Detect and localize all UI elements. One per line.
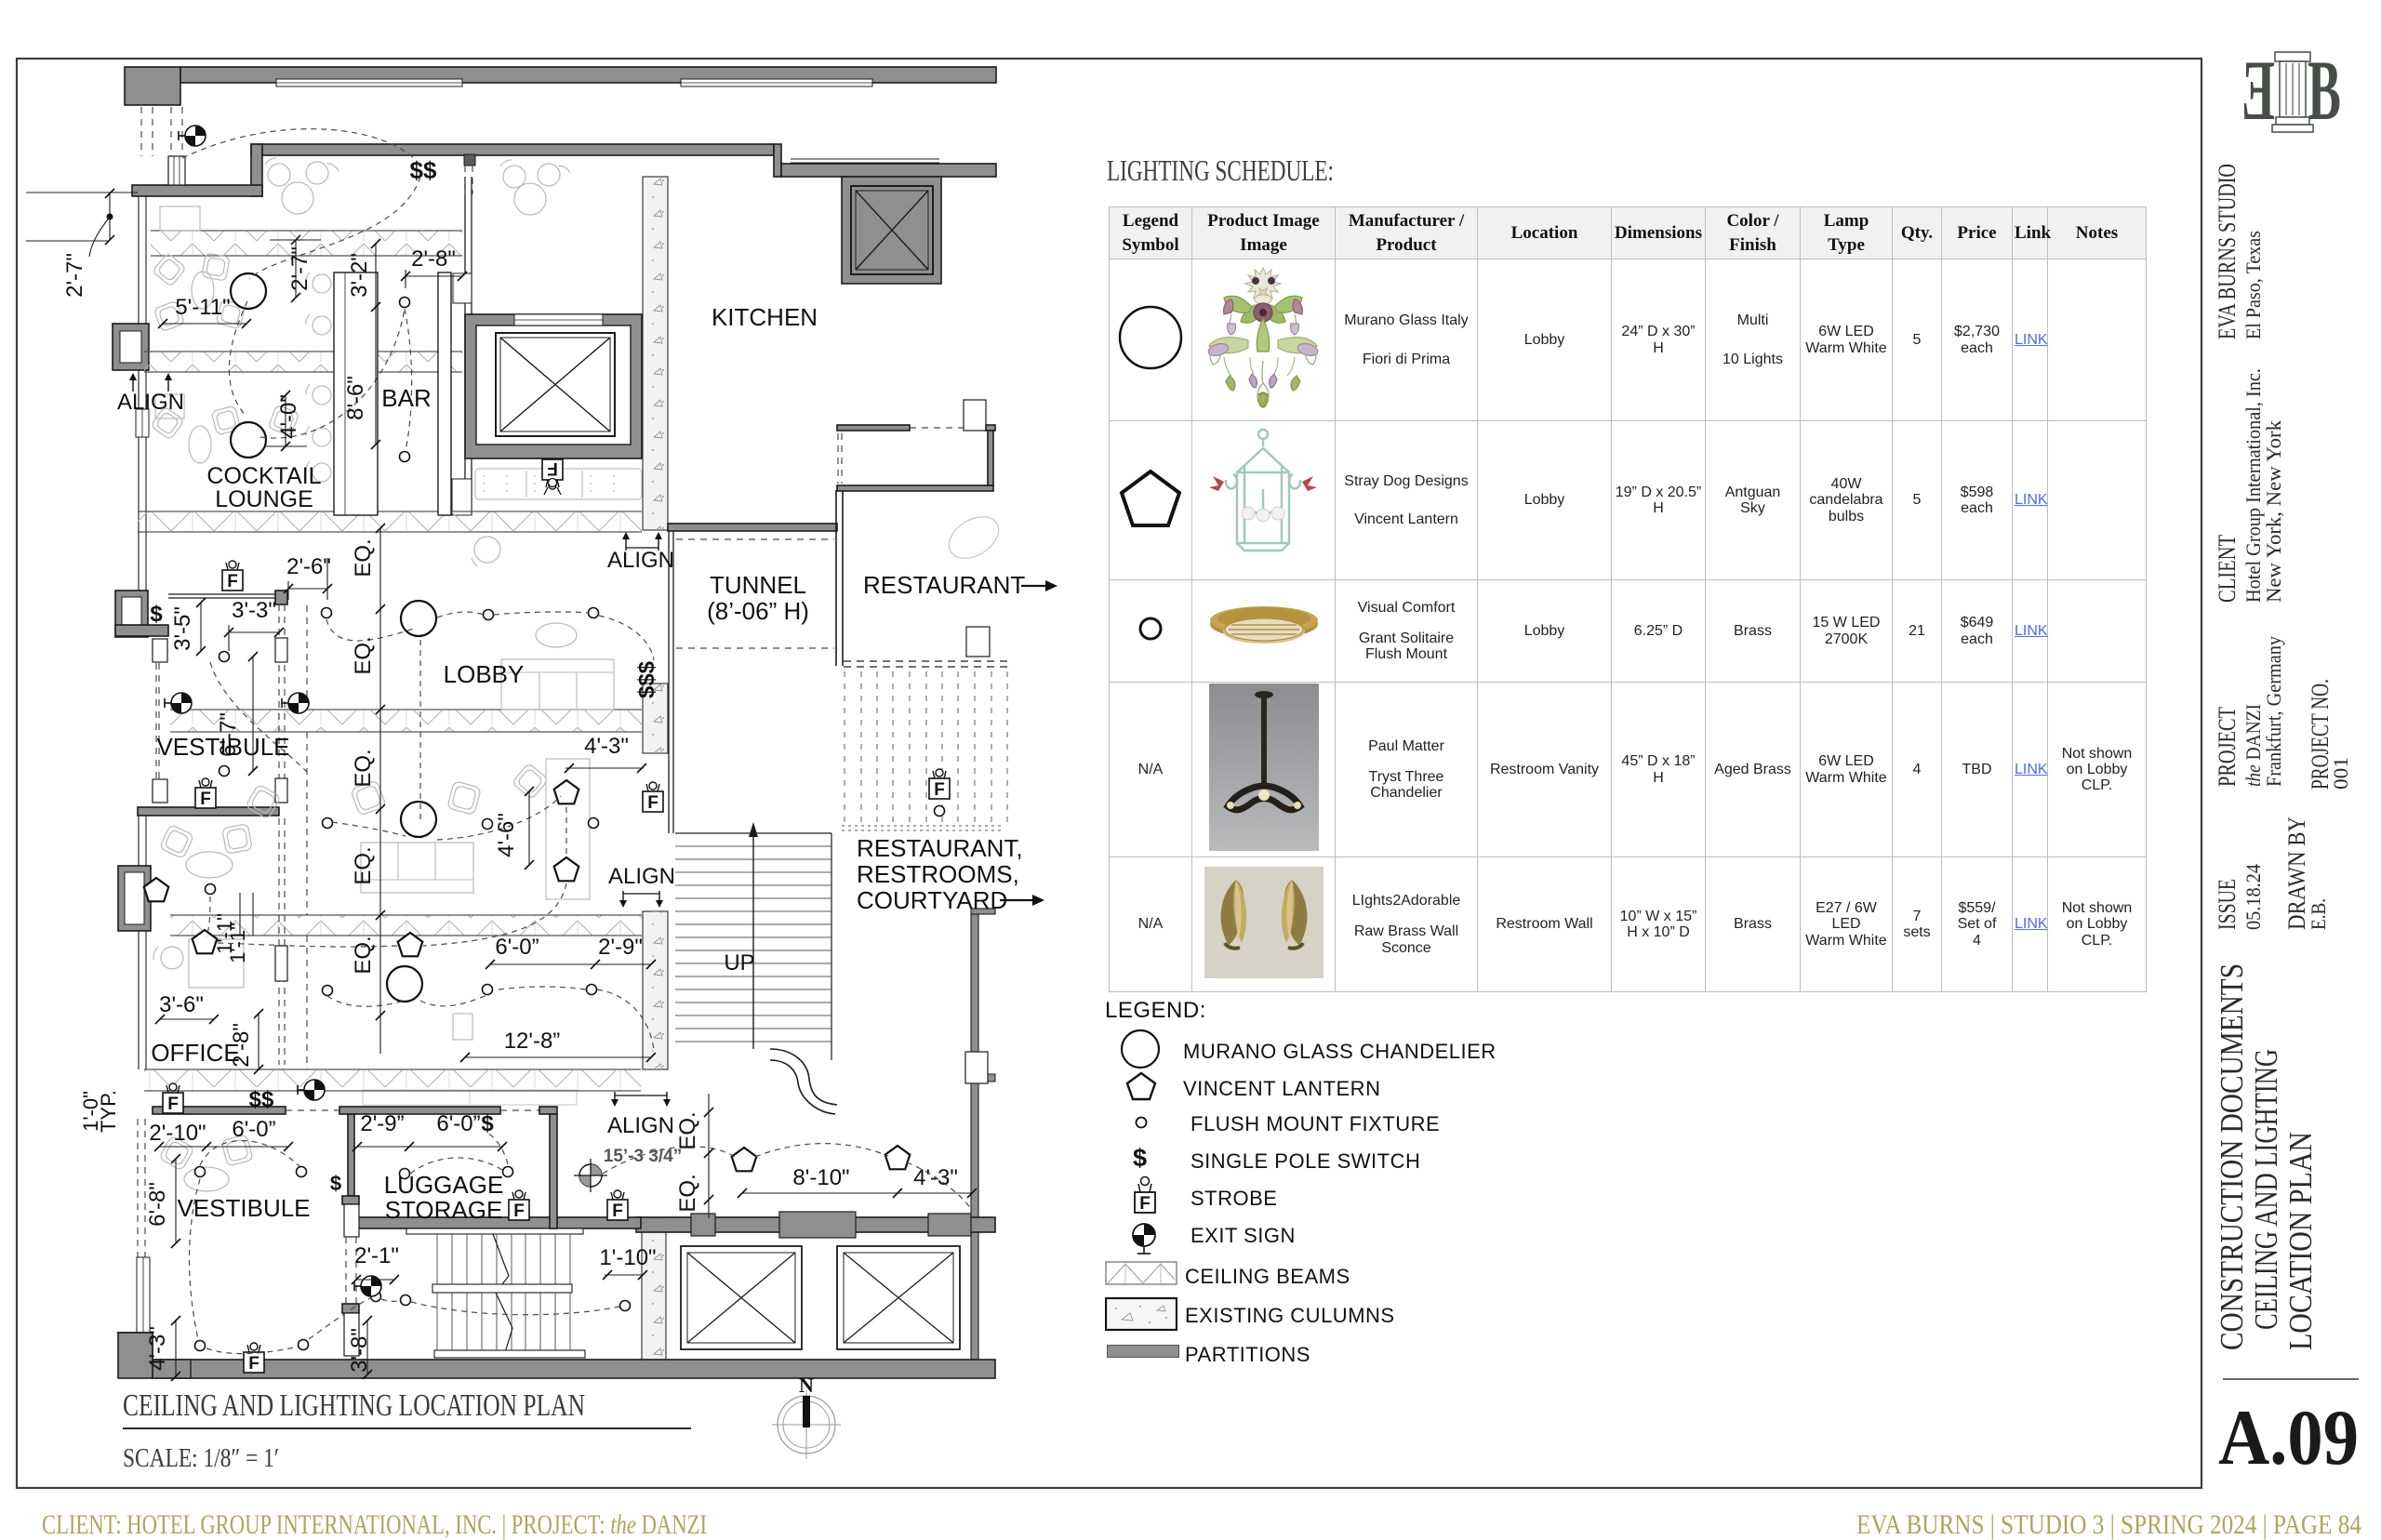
svg-text:COURTYARD: COURTYARD	[857, 886, 1007, 914]
svg-text:2'-10": 2'-10"	[149, 1121, 206, 1146]
svg-text:6'-7": 6'-7"	[216, 712, 241, 757]
svg-text:STORAGE: STORAGE	[385, 1196, 503, 1224]
svg-text:B: B	[2308, 43, 2341, 138]
svg-text:EQ.: EQ.	[675, 1111, 700, 1149]
svg-text:M l: M l	[1257, 394, 1270, 405]
svg-text:VESTIBULE: VESTIBULE	[177, 1194, 310, 1222]
svg-text:$: $	[481, 1111, 494, 1136]
svg-text:F: F	[612, 1201, 623, 1221]
svg-text:$$$: $$$	[634, 660, 659, 698]
svg-text:2'-6": 2'-6"	[286, 554, 331, 579]
svg-text:UP: UP	[724, 950, 754, 976]
svg-text:CLIENT: HOTEL GROUP INTERNATIO: CLIENT: HOTEL GROUP INTERNATIONAL, INC. …	[42, 1509, 707, 1540]
svg-text:12'-8”: 12'-8”	[504, 1029, 561, 1054]
svg-text:6'-8": 6'-8"	[145, 1182, 170, 1227]
svg-text:EQ.: EQ.	[351, 538, 376, 577]
svg-text:$$: $$	[410, 156, 437, 184]
svg-text:2'-8": 2'-8"	[411, 246, 456, 272]
svg-text:OFFICE: OFFICE	[151, 1039, 239, 1067]
svg-text:F: F	[167, 1095, 179, 1114]
svg-text:15’-3 3/4”: 15’-3 3/4”	[604, 1147, 683, 1166]
svg-text:New York, New York: New York, New York	[2262, 420, 2285, 603]
svg-text:RESTAURANT,: RESTAURANT,	[857, 834, 1023, 862]
svg-text:F: F	[513, 1201, 525, 1221]
svg-text:F: F	[934, 780, 945, 800]
svg-text:A.09: A.09	[2218, 1394, 2359, 1481]
svg-text:4'-3": 4'-3"	[584, 734, 629, 759]
svg-text:3'-5": 3'-5"	[170, 606, 195, 651]
svg-text:2'-8": 2'-8"	[229, 1023, 254, 1068]
svg-text:3'-2": 3'-2"	[347, 253, 372, 298]
svg-text:LOCATION PLAN: LOCATION PLAN	[2282, 1132, 2319, 1350]
svg-text:F: F	[547, 458, 558, 478]
svg-text:PROJECT: PROJECT	[2214, 707, 2241, 787]
svg-text:3'-6": 3'-6"	[159, 992, 204, 1017]
svg-text:1'-1": 1'-1"	[226, 923, 249, 963]
svg-text:ALIGN: ALIGN	[607, 548, 674, 573]
svg-text:1'-10": 1'-10"	[599, 1245, 656, 1270]
svg-text:ALIGN: ALIGN	[607, 1113, 674, 1138]
svg-text:El Paso, Texas: El Paso, Texas	[2241, 231, 2265, 339]
svg-text:F: F	[227, 572, 238, 591]
svg-text:ALIGN: ALIGN	[117, 390, 184, 415]
svg-text:CEILING AND LIGHTING: CEILING AND LIGHTING	[2248, 1049, 2284, 1330]
svg-text:SCALE: 1/8″ = 1′: SCALE: 1/8″ = 1′	[123, 1444, 279, 1473]
svg-text:F: F	[1139, 1194, 1151, 1214]
svg-text:LUGGAGE: LUGGAGE	[384, 1171, 504, 1199]
svg-text:LIGHTING SCHEDULE:: LIGHTING SCHEDULE:	[1107, 153, 1334, 187]
svg-text:COCKTAIL: COCKTAIL	[206, 463, 321, 489]
svg-text:N: N	[799, 1374, 814, 1397]
svg-text:$$: $$	[249, 1087, 274, 1112]
svg-text:RESTROOMS,: RESTROOMS,	[857, 860, 1019, 888]
svg-text:001: 001	[2329, 757, 2352, 790]
svg-text:F: F	[647, 793, 658, 813]
svg-text:4'-3": 4'-3"	[913, 1165, 958, 1190]
svg-text:EQ.: EQ.	[351, 749, 376, 787]
svg-text:ALIGN: ALIGN	[608, 864, 675, 889]
svg-text:EQ.: EQ.	[675, 1174, 700, 1212]
svg-text:6'-0”: 6'-0”	[436, 1111, 480, 1136]
svg-text:3'-8": 3'-8"	[347, 1328, 372, 1373]
svg-text:$: $	[150, 602, 163, 627]
svg-text:6'-0”: 6'-0”	[495, 935, 539, 960]
svg-text:F: F	[248, 1354, 259, 1374]
svg-text:LOBBY: LOBBY	[444, 660, 525, 688]
svg-text:EVA BURNS STUDIO: EVA BURNS STUDIO	[2214, 164, 2241, 339]
svg-text:TYP.: TYP.	[97, 1090, 120, 1133]
svg-text:RESTAURANT: RESTAURANT	[863, 571, 1025, 599]
svg-text:CEILING AND LIGHTING LOCATION: CEILING AND LIGHTING LOCATION PLAN	[123, 1388, 585, 1423]
svg-text:2'-7": 2'-7"	[62, 253, 87, 298]
svg-text:ISSUE: ISSUE	[2214, 879, 2241, 930]
svg-text:5'-11": 5'-11"	[175, 295, 230, 320]
svg-text:EVA BURNS | STUDIO 3 | SPRING: EVA BURNS | STUDIO 3 | SPRING 2024 | PAG…	[1856, 1509, 2361, 1540]
svg-text:CLIENT: CLIENT	[2214, 535, 2241, 603]
svg-text:LOUNGE: LOUNGE	[215, 486, 313, 512]
svg-text:2'-7": 2'-7"	[287, 246, 313, 291]
svg-text:4'-6": 4'-6"	[494, 813, 519, 857]
svg-text:4'-3": 4'-3"	[145, 1326, 170, 1371]
svg-text:05.18.24: 05.18.24	[2241, 864, 2265, 930]
svg-text:Frankfurt, Germany: Frankfurt, Germany	[2262, 636, 2285, 787]
svg-text:EQ.: EQ.	[351, 936, 376, 974]
svg-text:CONSTRUCTION DOCUMENTS: CONSTRUCTION DOCUMENTS	[2214, 963, 2250, 1350]
svg-text:(8’-06” H): (8’-06” H)	[707, 597, 809, 625]
svg-text:$: $	[330, 1172, 341, 1195]
svg-text:TUNNEL: TUNNEL	[710, 571, 806, 599]
svg-text:EQ.: EQ.	[351, 636, 376, 674]
svg-text:E: E	[2241, 43, 2275, 138]
svg-text:KITCHEN: KITCHEN	[712, 303, 818, 331]
svg-text:2'-1": 2'-1"	[354, 1243, 399, 1268]
svg-text:3'-3": 3'-3"	[232, 598, 276, 623]
svg-text:6'-0”: 6'-0”	[232, 1117, 275, 1142]
svg-text:2'-9”: 2'-9”	[360, 1111, 404, 1136]
svg-text:E.B.: E.B.	[2307, 898, 2330, 930]
svg-text:8'-6": 8'-6"	[343, 376, 368, 420]
svg-text:BAR: BAR	[381, 384, 431, 412]
svg-text:F: F	[200, 790, 211, 809]
svg-text:2'-9": 2'-9"	[598, 935, 643, 960]
svg-text:4'-0": 4'-0"	[276, 394, 301, 439]
svg-text:8'-10": 8'-10"	[792, 1165, 849, 1190]
svg-text:EQ.: EQ.	[351, 846, 376, 884]
